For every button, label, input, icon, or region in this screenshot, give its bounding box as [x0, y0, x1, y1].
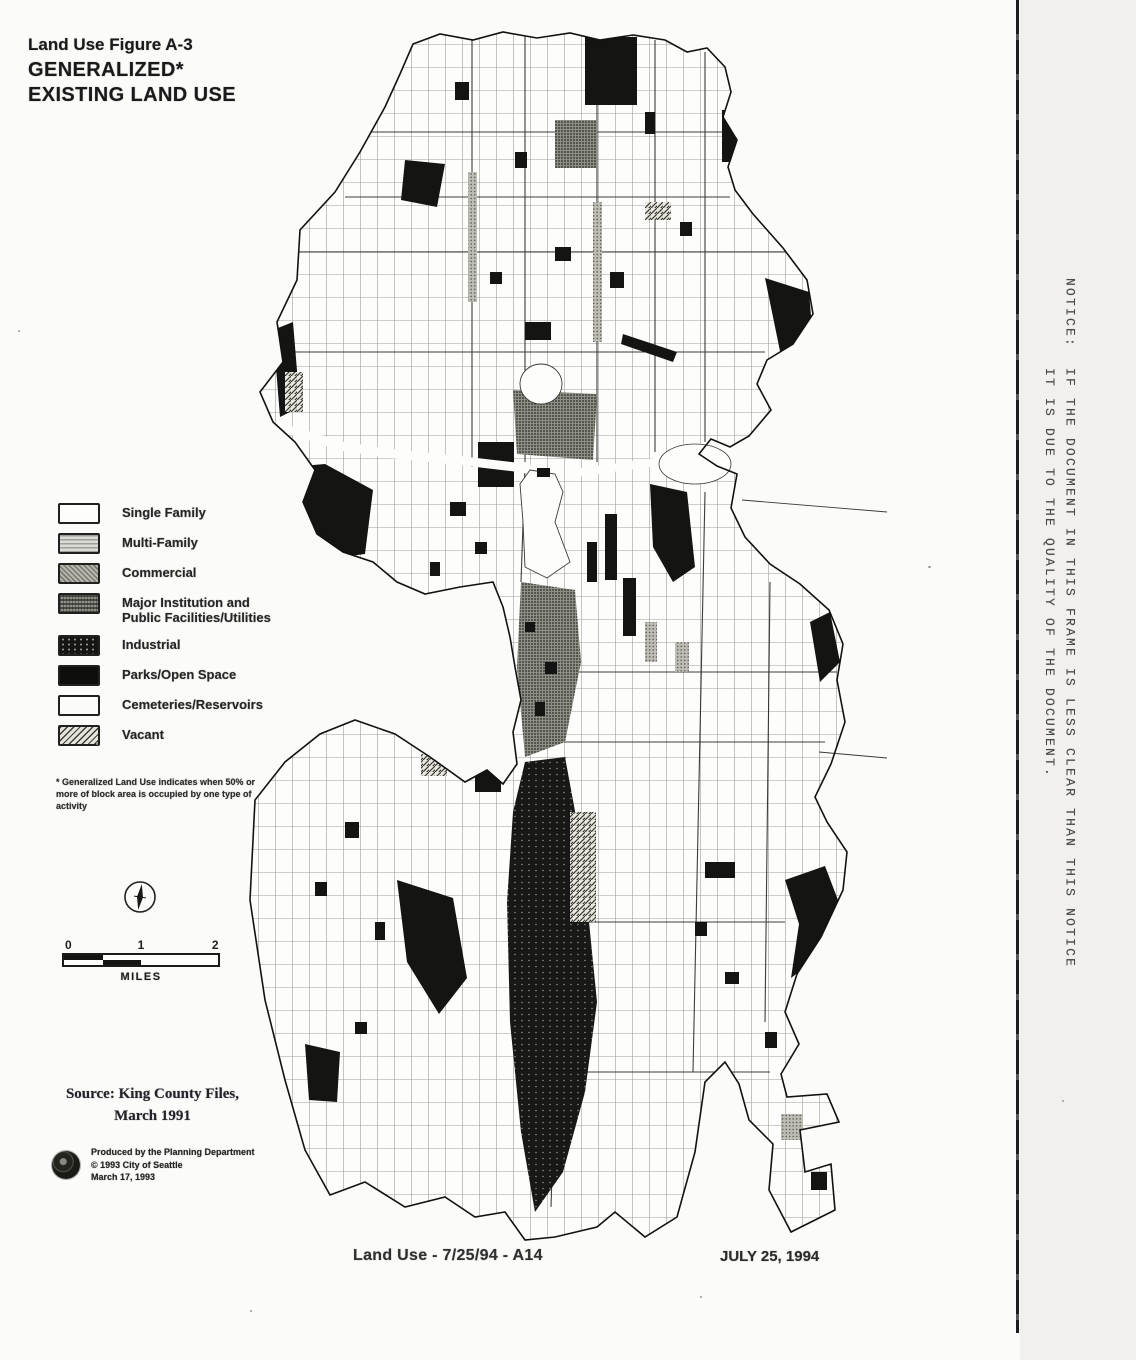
scale-unit-label: MILES: [62, 971, 220, 983]
legend-label: Industrial: [122, 635, 277, 653]
legend: Single Family Multi-Family Commercial Ma…: [58, 503, 293, 755]
scan-speck: [1062, 1100, 1064, 1102]
cemeteries-reservoirs-swatch: [58, 695, 100, 716]
page-title: Land Use Figure A-3 GENERALIZED* EXISTIN…: [28, 34, 236, 108]
legend-label: Multi-Family: [122, 533, 277, 551]
seattle-land-use-map-graphic: [225, 22, 890, 1247]
source-line1: Source: King County Files,: [50, 1084, 255, 1106]
legend-label: Vacant: [122, 725, 277, 743]
credit-line3: March 17, 1993: [91, 1171, 255, 1184]
scanned-land-use-figure-page: Land Use Figure A-3 GENERALIZED* EXISTIN…: [0, 0, 1136, 1360]
scan-speck: [928, 566, 931, 568]
microfilm-notice: NOTICE: IF THE DOCUMENT IN THIS FRAME IS…: [1038, 278, 1080, 968]
credit-block: Produced by the Planning Department © 19…: [52, 1146, 322, 1184]
scan-speck: [700, 1296, 702, 1298]
legend-label: Major Institution and Public Facilities/…: [122, 593, 277, 626]
north-arrow-icon: [121, 878, 159, 916]
scale-tick-2: 2: [212, 938, 219, 952]
major-institution-swatch: [58, 593, 100, 614]
footer-document-id: Land Use - 7/25/94 - A14: [353, 1247, 543, 1265]
microfilm-frame-line: [1016, 0, 1019, 1333]
legend-label: Single Family: [122, 503, 277, 521]
source-note: Source: King County Files, March 1991: [50, 1084, 255, 1128]
legend-row: Major Institution and Public Facilities/…: [58, 593, 293, 626]
legend-row: Vacant: [58, 725, 293, 746]
footer-date: JULY 25, 1994: [720, 1248, 819, 1265]
source-line2: March 1991: [50, 1106, 255, 1128]
vacant-swatch: [58, 725, 100, 746]
legend-label: Parks/Open Space: [122, 665, 277, 683]
scan-speck: [18, 330, 20, 332]
legend-row: Commercial: [58, 563, 293, 584]
credit-line1: Produced by the Planning Department: [91, 1146, 255, 1159]
industrial-swatch: [58, 635, 100, 656]
legend-row: Cemeteries/Reservoirs: [58, 695, 293, 716]
scale-tick-1: 1: [138, 938, 145, 952]
title-existing-land-use: EXISTING LAND USE: [28, 83, 236, 108]
figure-number: Land Use Figure A-3: [28, 34, 236, 55]
legend-row: Multi-Family: [58, 533, 293, 554]
generalized-footnote: * Generalized Land Use indicates when 50…: [56, 776, 264, 812]
legend-row: Single Family: [58, 503, 293, 524]
legend-row: Parks/Open Space: [58, 665, 293, 686]
scan-speck: [250, 1310, 252, 1312]
credit-text: Produced by the Planning Department © 19…: [91, 1146, 255, 1184]
credit-line2: © 1993 City of Seattle: [91, 1159, 255, 1172]
commercial-swatch: [58, 563, 100, 584]
notice-line2: IT IS DUE TO THE QUALITY OF THE DOCUMENT…: [1038, 278, 1059, 968]
scan-speck: [96, 742, 98, 745]
legend-label: Commercial: [122, 563, 277, 581]
scale-bar: 0 1 2 MILES: [62, 938, 220, 983]
notice-line1: NOTICE: IF THE DOCUMENT IN THIS FRAME IS…: [1059, 278, 1080, 968]
legend-row: Industrial: [58, 635, 293, 656]
parks-open-space-swatch: [58, 665, 100, 686]
title-generalized: GENERALIZED*: [28, 58, 236, 83]
legend-label: Cemeteries/Reservoirs: [122, 695, 277, 713]
multi-family-swatch: [58, 533, 100, 554]
scale-tick-0: 0: [65, 938, 72, 952]
city-seal-icon: [52, 1151, 80, 1179]
single-family-swatch: [58, 503, 100, 524]
scale-bar-graphic: [62, 953, 220, 967]
